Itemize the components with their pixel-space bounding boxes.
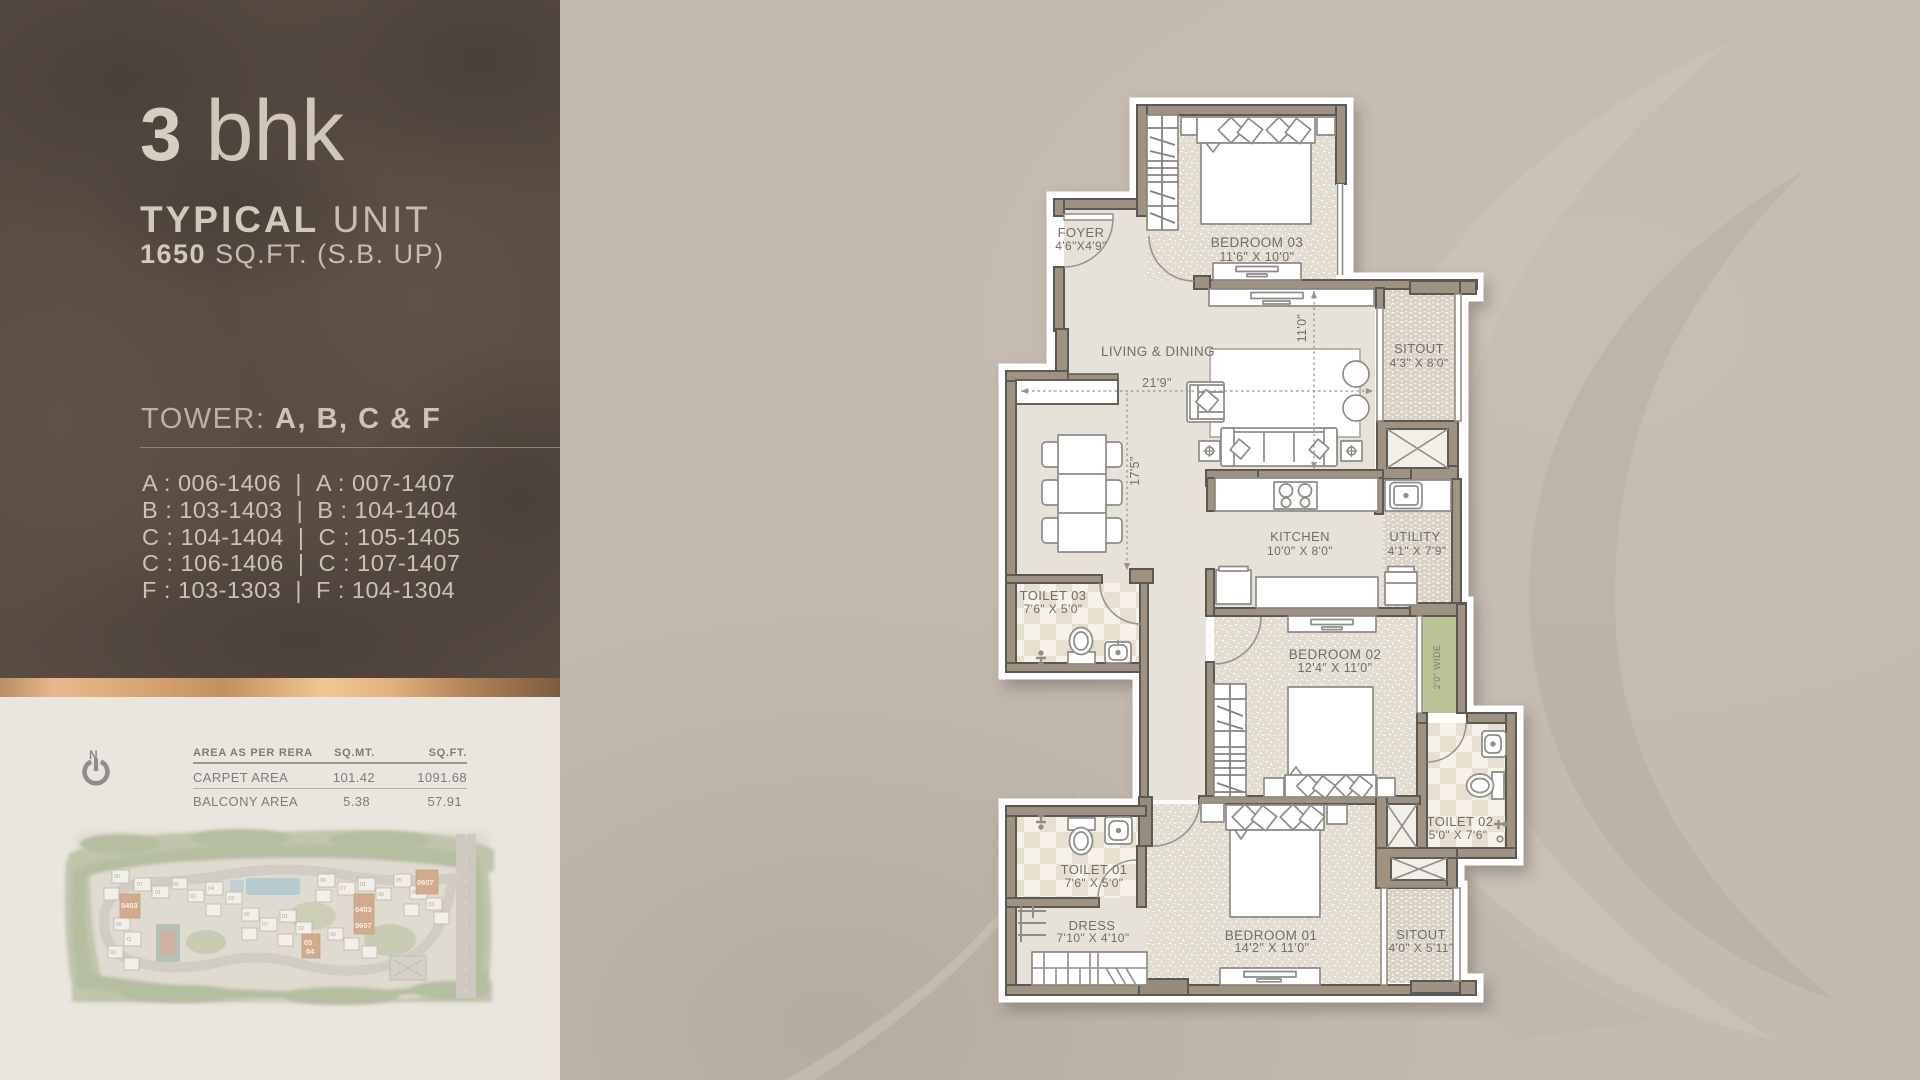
svg-text:11'0": 11'0": [1295, 314, 1309, 343]
svg-text:KITCHEN: KITCHEN: [1270, 529, 1330, 544]
svg-text:UTILITY: UTILITY: [1389, 529, 1440, 544]
svg-text:LIVING & DINING: LIVING & DINING: [1101, 344, 1215, 359]
svg-text:11'6" X 10'0": 11'6" X 10'0": [1220, 250, 1295, 264]
svg-text:5'0" X 7'6": 5'0" X 7'6": [1429, 828, 1488, 842]
svg-text:10'0" X 8'0": 10'0" X 8'0": [1267, 544, 1333, 558]
svg-text:7'6" X 5'0": 7'6" X 5'0": [1065, 876, 1124, 890]
svg-text:TOILET 01: TOILET 01: [1061, 862, 1128, 877]
svg-text:TOILET 03: TOILET 03: [1020, 588, 1087, 603]
svg-text:TOILET 02: TOILET 02: [1427, 814, 1494, 829]
svg-text:4'0" X 5'11": 4'0" X 5'11": [1388, 941, 1453, 955]
svg-text:17'5": 17'5": [1128, 456, 1142, 486]
svg-text:BEDROOM 02: BEDROOM 02: [1289, 647, 1382, 662]
svg-text:12'4" X 11'0": 12'4" X 11'0": [1298, 661, 1373, 675]
svg-text:FOYER: FOYER: [1058, 225, 1105, 240]
svg-text:14'2" X 11'0": 14'2" X 11'0": [1235, 941, 1310, 955]
svg-text:4'1" X 7'9": 4'1" X 7'9": [1388, 544, 1447, 558]
svg-text:SITOUT: SITOUT: [1394, 341, 1444, 356]
svg-text:4'3" X 8'0": 4'3" X 8'0": [1390, 356, 1449, 370]
svg-text:2'0" WIDE: 2'0" WIDE: [1432, 645, 1442, 690]
svg-text:7'6" X 5'0": 7'6" X 5'0": [1024, 602, 1083, 616]
svg-text:SITOUT: SITOUT: [1396, 927, 1446, 942]
svg-text:BEDROOM 03: BEDROOM 03: [1211, 235, 1304, 250]
svg-text:21'9": 21'9": [1142, 376, 1172, 390]
svg-text:4'6"X4'9": 4'6"X4'9": [1055, 239, 1106, 253]
svg-text:7'10" X 4'10": 7'10" X 4'10": [1056, 931, 1129, 945]
